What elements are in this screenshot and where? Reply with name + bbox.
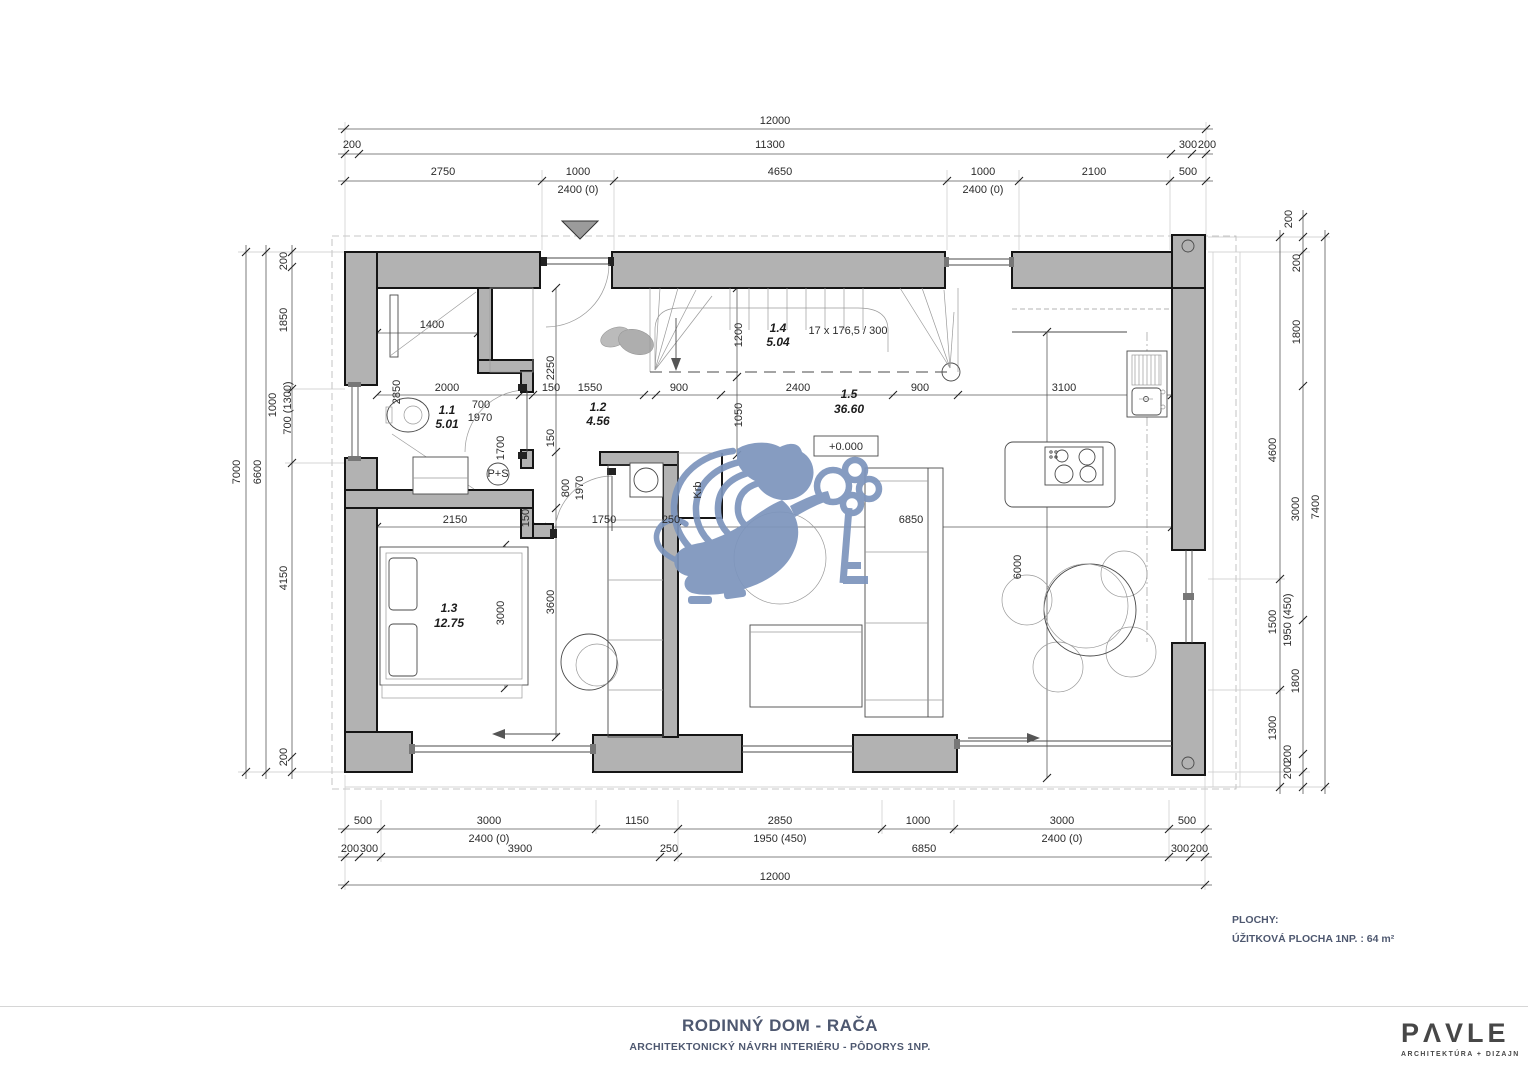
armchair [561, 634, 617, 690]
dim-label: 1000 [267, 393, 279, 417]
dim-label: 1200 [733, 323, 745, 347]
dim-label: 700 (1300) [282, 381, 294, 434]
room-area: 5.01 [435, 417, 459, 431]
room-area: 12.75 [434, 616, 464, 630]
level-mark: +0.000 [829, 441, 863, 453]
dim-label: 150 [545, 429, 557, 447]
wardrobe [608, 465, 663, 737]
dim-label: 300 [360, 843, 378, 855]
dim-label: 1000 [971, 166, 995, 178]
dim-label: 3000 [1290, 497, 1302, 521]
dim-label: 200 [1283, 210, 1295, 228]
dim-label: 2400 (0) [558, 184, 599, 196]
room-label: 1.1 [439, 403, 456, 417]
staircase [650, 288, 960, 381]
hall-sculpture [598, 323, 657, 359]
title-divider-line [0, 1006, 1528, 1007]
dim-label: 1750 [592, 514, 616, 526]
dim-label: 800 [560, 479, 572, 497]
dim-label: 1400 [420, 319, 444, 331]
dim-label: 1700 [495, 436, 507, 460]
drawing-title: RODINNÝ DOM - RAČA [400, 1016, 1160, 1036]
dim-label: 3900 [508, 843, 532, 855]
dim-label: 7000 [231, 460, 243, 484]
dim-label: 300 [1171, 843, 1189, 855]
dim-label: 2850 [391, 380, 403, 404]
dim-label: 12000 [760, 115, 791, 127]
dim-label: 12000 [760, 871, 791, 883]
dim-label: 150 [520, 509, 532, 527]
dim-label: 200 [1282, 745, 1294, 763]
room-area: 5.04 [766, 335, 790, 349]
dim-label: 250 [660, 843, 678, 855]
dim-label: 200 [1198, 139, 1216, 151]
dim-label: 3000 [1050, 815, 1074, 827]
dim-label: 200 [343, 139, 361, 151]
dim-label: 1300 [1267, 716, 1279, 740]
room-area: 36.60 [834, 402, 864, 416]
dim-label: 1500 [1267, 610, 1279, 634]
kitchen-island [1005, 442, 1115, 507]
dim-label: 6600 [252, 460, 264, 484]
dim-label: 2400 (0) [1042, 833, 1083, 845]
dim-label: 1000 [566, 166, 590, 178]
logo-tagline: ARCHITEKTÚRA + DIZAJN [1401, 1051, 1526, 1058]
areas-heading: PLOCHY: [1232, 911, 1394, 930]
dim-label: 300 [1179, 139, 1197, 151]
dim-label: 150 [542, 382, 560, 394]
dim-label: 500 [1179, 166, 1197, 178]
dim-label: 2150 [443, 514, 467, 526]
floor-plan-sheet: 1200020011300300200275010002400 (0)46501… [0, 0, 1528, 1080]
dim-label: 1970 [574, 476, 586, 500]
dim-label: 3000 [495, 601, 507, 625]
drawing-subtitle: ARCHITEKTONICKÝ NÁVRH INTERIÉRU - PÔDORY… [400, 1041, 1160, 1053]
areas-line: ÚŽITKOVÁ PLOCHA 1NP. : 64 m² [1232, 930, 1394, 949]
kitchen [1005, 309, 1172, 642]
dim-label: 2400 (0) [963, 184, 1004, 196]
areas-note: PLOCHY: ÚŽITKOVÁ PLOCHA 1NP. : 64 m² [1232, 911, 1394, 949]
dim-label: 3000 [477, 815, 501, 827]
dim-label: 200 [278, 748, 290, 766]
dim-label: 3100 [1052, 382, 1076, 394]
dim-label: 1970 [468, 412, 492, 424]
dim-label: 4600 [1267, 438, 1279, 462]
dim-label: 6850 [899, 514, 923, 526]
dim-label: 500 [354, 815, 372, 827]
watermark-lion-key-icon [657, 443, 879, 604]
dim-label: 1550 [578, 382, 602, 394]
dim-label: 2100 [1082, 166, 1106, 178]
dim-label: 250 [662, 514, 680, 526]
dim-label: 700 [472, 399, 490, 411]
dim-label: 1150 [625, 815, 649, 827]
dim-label: 1000 [906, 815, 930, 827]
dim-label: 1800 [1290, 669, 1302, 693]
dim-label: 200 [278, 252, 290, 270]
logo-name: PΛVLE [1401, 1018, 1526, 1049]
studio-logo: PΛVLE ARCHITEKTÚRA + DIZAJN [1401, 1018, 1526, 1058]
title-block: RODINNÝ DOM - RAČA ARCHITEKTONICKÝ NÁVRH… [400, 1016, 1160, 1053]
dim-label: 200 [1190, 843, 1208, 855]
dim-label: 11300 [755, 139, 785, 151]
dim-label: 2400 (0) [469, 833, 510, 845]
washer-dryer-label: P+S [487, 468, 508, 480]
room-label: 1.3 [441, 601, 458, 615]
dim-label: 4650 [768, 166, 792, 178]
dim-label: 2400 [786, 382, 810, 394]
dim-label: 2000 [435, 382, 459, 394]
dim-label: 4150 [278, 566, 290, 590]
dim-label: 6850 [912, 843, 936, 855]
dim-label: 900 [911, 382, 929, 394]
dim-label: 2250 [545, 356, 557, 380]
dim-label: 2850 [768, 815, 792, 827]
dim-label: 7400 [1310, 495, 1322, 519]
dim-label: 200 [1291, 254, 1303, 272]
dim-label: 500 [1178, 815, 1196, 827]
dim-label: 900 [670, 382, 688, 394]
room-area: 4.56 [585, 414, 610, 428]
fireplace-label: Krb [692, 481, 704, 498]
room-label: 1.2 [590, 400, 607, 414]
dim-label: 17 x 176,5 / 300 [809, 325, 888, 337]
room-label: 1.5 [841, 387, 858, 401]
room-label: 1.4 [770, 321, 787, 335]
dim-label: 1850 [278, 308, 290, 332]
dim-label: 2750 [431, 166, 455, 178]
dim-label: 1950 (450) [753, 833, 806, 845]
dim-label: 3600 [545, 590, 557, 614]
dining-set [1002, 551, 1156, 692]
washing-machine [413, 457, 468, 494]
dim-label: 200 [1282, 761, 1294, 779]
dim-label: 6000 [1012, 555, 1024, 579]
dim-label: 200 [341, 843, 359, 855]
dim-label: 1050 [733, 403, 745, 427]
dim-label: 1950 (450) [1282, 593, 1294, 646]
dim-label: 1800 [1291, 320, 1303, 344]
